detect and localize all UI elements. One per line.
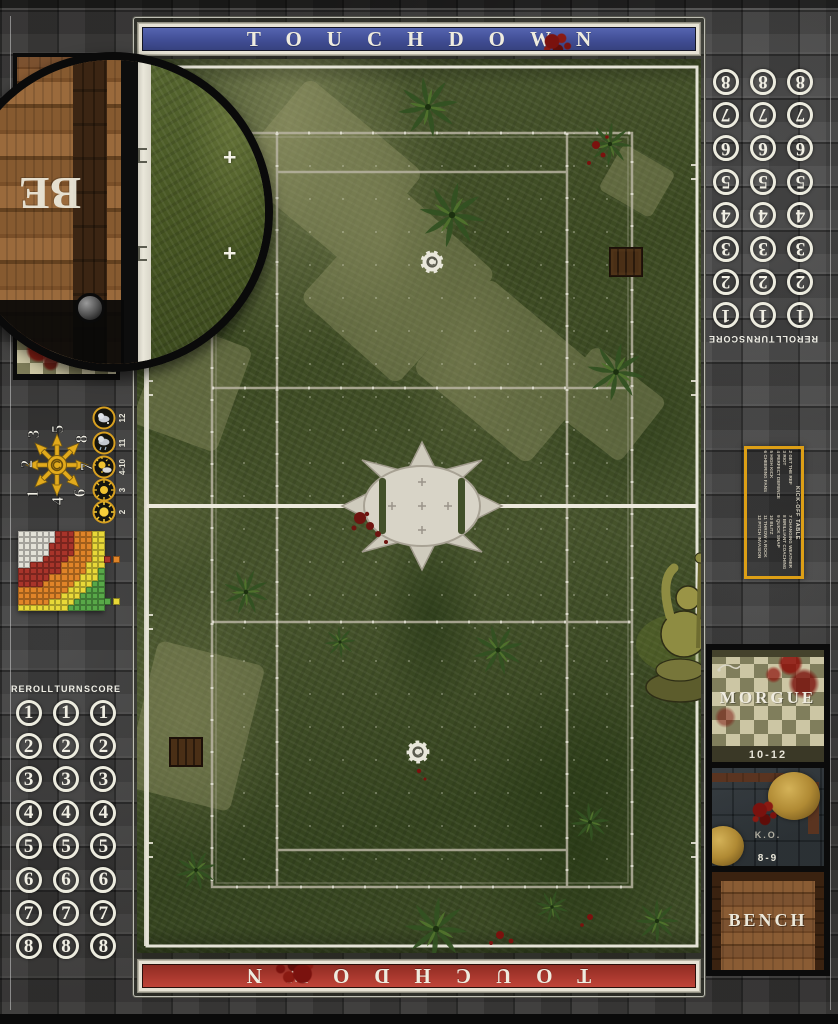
track-circle-3: 3: [16, 766, 42, 792]
morgue-zone: MORGUE 10-12: [712, 650, 824, 762]
zoom-bench-letters: BE: [11, 160, 81, 220]
track-circle-8: 8: [787, 69, 813, 95]
touchdown-banner-bottom: TOUCHDOWN: [137, 959, 701, 993]
track-circle-6: 6: [787, 135, 813, 161]
left-templates: 1 2 3 4 5 6 7 8: [0, 398, 130, 530]
svg-text:3: 3: [118, 487, 127, 492]
morgue-range: 10-12: [712, 749, 824, 761]
weather-table: 12 11 4-10 3 2: [94, 408, 128, 523]
stone-border-bottom: [0, 1014, 838, 1024]
stone-border-top: [0, 0, 838, 8]
track-circle-3: 3: [750, 236, 776, 262]
range-legend-top: [104, 556, 120, 563]
weather-values: 12 11 4-10 3 2: [118, 413, 127, 514]
svg-text:3: 3: [24, 430, 43, 439]
track-circle-7: 7: [750, 102, 776, 128]
zoom-dugout-frame-bottom: [0, 300, 124, 364]
track-circle-7: 7: [53, 900, 79, 926]
weather-blazing-sun-icon: [94, 502, 115, 523]
kickoff-entry: 11 THROW A ROCK: [762, 515, 768, 576]
score-track-circles: 111222333444555666777888: [707, 65, 819, 332]
svg-text:11: 11: [118, 438, 127, 447]
morgue-top-bar: [712, 650, 824, 657]
range-legend-bottom: [104, 598, 120, 605]
track-circle-4: 4: [750, 202, 776, 228]
kickoff-entry: 7 CHANGING WEATHER: [787, 515, 793, 576]
score-track-headers: REROLLTURNSCORE: [10, 684, 122, 694]
bloodbowl-jungle-mat: TOUCHDOWN: [0, 0, 838, 1024]
bench-beam: [712, 872, 824, 881]
plus-mark-icon: +: [223, 242, 236, 265]
track-circle-8: 8: [713, 69, 739, 95]
svg-text:5: 5: [48, 425, 67, 434]
ko-range: 8-9: [712, 853, 824, 864]
grommet-icon: [75, 293, 105, 323]
track-circle-6: 6: [16, 867, 42, 893]
morgue-label: MORGUE: [712, 688, 824, 708]
track-header-score: SCORE: [708, 334, 745, 344]
track-circle-1: 1: [750, 302, 776, 328]
track-circle-3: 3: [90, 766, 116, 792]
kickoff-column-2: 7 CHANGING WEATHER8 BRILLIANT COACHING9 …: [756, 515, 793, 576]
touchdown-banner-top-bar: TOUCHDOWN: [142, 27, 696, 51]
track-circle-8: 8: [53, 933, 79, 959]
track-header-reroll: REROLL: [775, 334, 818, 344]
gear-marker-icon: [407, 741, 429, 763]
track-circle-5: 5: [90, 833, 116, 859]
track-header-turn: TURN: [746, 334, 775, 344]
zoom-grass: [151, 60, 265, 364]
score-track-left: REROLLTURNSCORE 111222333444555666777888: [10, 684, 122, 972]
track-circle-1: 1: [16, 700, 42, 726]
kickoff-entry: 8 BRILLIANT COACHING: [781, 515, 787, 576]
track-circle-3: 3: [787, 236, 813, 262]
kickoff-table-title: KICK-OFF TABLE: [794, 450, 800, 575]
track-circle-7: 7: [90, 900, 116, 926]
touchdown-banner-bottom-label: TOUCHDOWN: [222, 964, 616, 988]
weather-snow-cloud-icon: [94, 408, 115, 429]
kickoff-entry: 9 QUICK SNAP: [774, 515, 780, 576]
track-circle-6: 6: [90, 867, 116, 893]
track-circle-7: 7: [787, 102, 813, 128]
zoom-inset-circle: BE + +: [0, 52, 273, 372]
idol-statue: [636, 553, 701, 702]
ko-zone: K.O. 8-9: [712, 768, 824, 866]
track-header-turn: TURN: [54, 684, 83, 694]
weather-sun-cloud-icon: [94, 457, 115, 478]
track-circle-4: 4: [90, 800, 116, 826]
score-track-circles: 111222333444555666777888: [10, 696, 122, 963]
track-circle-4: 4: [53, 800, 79, 826]
kickoff-table: KICK-OFF TABLE 2 GET THE REF3 RIOT4 PERF…: [744, 446, 804, 579]
legend-swatch: [104, 598, 111, 605]
touchdown-banner-top: TOUCHDOWN: [137, 22, 701, 56]
mat-edge-right: [830, 16, 831, 1010]
track-circle-8: 8: [90, 933, 116, 959]
track-circle-7: 7: [713, 102, 739, 128]
track-circle-2: 2: [16, 733, 42, 759]
kickoff-entry: 4 PERFECT DEFENCE: [774, 450, 780, 511]
center-logo: [342, 442, 502, 570]
kickoff-column-1: 2 GET THE REF3 RIOT4 PERFECT DEFENCE5 HI…: [756, 450, 793, 511]
weather-rain-cloud-icon: [94, 433, 115, 454]
touchdown-banner-top-label: TOUCHDOWN: [222, 27, 616, 51]
track-circle-1: 1: [787, 302, 813, 328]
track-header-score: SCORE: [84, 684, 121, 694]
track-circle-5: 5: [16, 833, 42, 859]
svg-text:2: 2: [17, 460, 36, 469]
svg-text:2: 2: [118, 509, 127, 514]
track-circle-7: 7: [16, 900, 42, 926]
track-circle-1: 1: [53, 700, 79, 726]
weather-sun-icon: [94, 480, 115, 501]
crate: [170, 738, 202, 766]
track-circle-8: 8: [750, 69, 776, 95]
track-circle-2: 2: [713, 269, 739, 295]
track-circle-5: 5: [750, 169, 776, 195]
track-header-reroll: REROLL: [11, 684, 54, 694]
zoom-sideline: [138, 60, 151, 364]
track-circle-2: 2: [750, 269, 776, 295]
bench-zone: BENCH: [712, 872, 824, 970]
track-circle-2: 2: [90, 733, 116, 759]
score-track-headers: REROLLTURNSCORE: [707, 334, 819, 344]
hay-pile: [768, 772, 820, 820]
track-circle-2: 2: [53, 733, 79, 759]
svg-text:4-10: 4-10: [118, 458, 127, 475]
kickoff-entry: 6 CHEERING FANS: [762, 450, 768, 511]
plus-mark-icon: +: [223, 146, 236, 169]
track-circle-8: 8: [16, 933, 42, 959]
svg-text:4: 4: [48, 496, 67, 505]
bench-label: BENCH: [712, 910, 824, 931]
track-circle-3: 3: [53, 766, 79, 792]
svg-text:8: 8: [72, 435, 91, 444]
range-cell-long-bomb: [98, 605, 104, 611]
legend-swatch: [104, 556, 111, 563]
rat-skeleton-icon: [716, 658, 742, 676]
legend-swatch: [113, 556, 120, 563]
track-circle-6: 6: [53, 867, 79, 893]
kickoff-entry: 12 PITCH INVASION: [756, 515, 762, 576]
pass-range-ruler: [18, 531, 104, 611]
track-circle-5: 5: [787, 169, 813, 195]
track-circle-4: 4: [713, 202, 739, 228]
touchdown-banner-bottom-bar: TOUCHDOWN: [142, 964, 696, 988]
track-circle-5: 5: [713, 169, 739, 195]
track-circle-4: 4: [16, 800, 42, 826]
score-track-right: REROLLTURNSCORE 111222333444555666777888: [707, 56, 819, 344]
ko-label: K.O.: [712, 830, 824, 840]
sideline-bracket-icon: [138, 148, 147, 163]
legend-swatch: [113, 598, 120, 605]
kickoff-entry: 2 GET THE REF: [787, 450, 793, 511]
track-circle-1: 1: [90, 700, 116, 726]
kickoff-entry: 3 RIOT: [781, 450, 787, 511]
dugout-right: MORGUE 10-12 K.O. 8-9 BENCH: [706, 644, 830, 976]
track-circle-6: 6: [750, 135, 776, 161]
sideline-bracket-icon: [138, 246, 147, 261]
svg-text:6: 6: [70, 489, 89, 498]
crate: [610, 248, 642, 276]
track-circle-4: 4: [787, 202, 813, 228]
track-circle-3: 3: [713, 236, 739, 262]
track-circle-1: 1: [713, 302, 739, 328]
svg-text:12: 12: [118, 413, 127, 422]
track-circle-2: 2: [787, 269, 813, 295]
track-circle-6: 6: [713, 135, 739, 161]
track-circle-5: 5: [53, 833, 79, 859]
svg-text:1: 1: [23, 490, 42, 499]
